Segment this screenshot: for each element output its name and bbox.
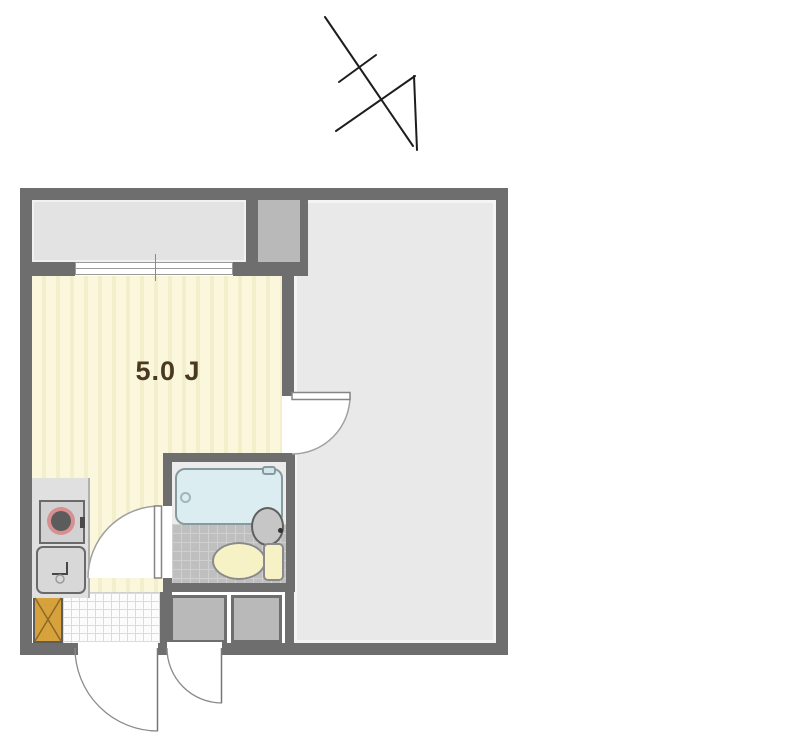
toilet-tank [263, 543, 284, 581]
sub-entrance-door [167, 648, 222, 703]
toilet-bowl [212, 542, 266, 580]
stove-burner-icon [51, 511, 71, 531]
wall-left [20, 188, 32, 655]
wall-storage-right [285, 592, 294, 643]
storage-box-2 [231, 595, 282, 643]
wall-pipe-right [300, 200, 308, 276]
entrance-door-opening [78, 642, 158, 655]
wall-pipe-left [246, 200, 258, 263]
north-arrow-icon [325, 17, 417, 150]
floor-plan-canvas: 5.0 J [0, 0, 800, 753]
wall-window-stub-left [32, 262, 75, 276]
balcony-area [32, 200, 246, 262]
wall-room-divider [282, 263, 294, 396]
storage-box-1 [170, 595, 227, 643]
wall-window-stub-right [233, 262, 308, 276]
entrance-door [75, 648, 158, 731]
sliding-window-rail [75, 268, 233, 269]
pipe-shaft-area [258, 200, 300, 263]
room-size-label: 5.0 J [118, 356, 218, 387]
bath-sink-tap-icon [278, 528, 283, 533]
wall-right [496, 188, 508, 652]
stove [39, 500, 85, 544]
bathtub-drain-icon [180, 492, 191, 503]
wall-top [20, 188, 508, 200]
bathtub-faucet-icon [262, 466, 276, 475]
stove-knob-icon [80, 517, 85, 528]
bath-sink [251, 507, 284, 546]
entrance-tile-floor [63, 592, 160, 644]
right-room-area [294, 200, 496, 643]
sub-door-opening [167, 642, 222, 655]
kitchen-sink [36, 546, 86, 594]
shoe-cabinet [33, 596, 63, 643]
